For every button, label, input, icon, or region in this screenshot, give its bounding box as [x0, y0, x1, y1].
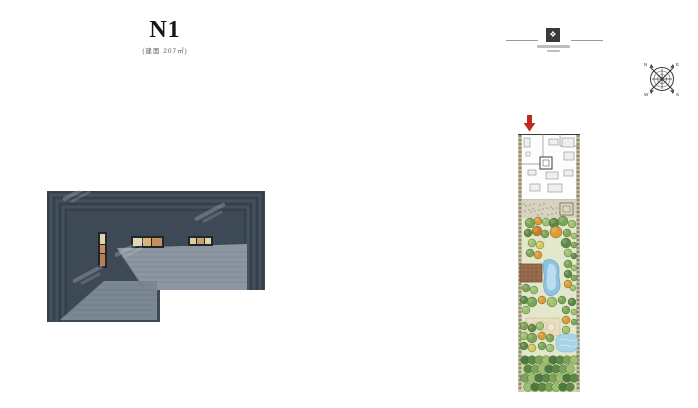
entry-arrow-icon [524, 115, 536, 132]
compass-letter-e: E [676, 62, 679, 67]
skylight-right [188, 236, 213, 246]
title-block: N1 (建面 207㎡) [110, 18, 220, 55]
unit-title: N1 [110, 18, 220, 43]
site-plan [516, 112, 582, 396]
logo-rule-right [571, 40, 603, 41]
logo-caption-line1 [537, 45, 570, 48]
compass-letter-w: W [644, 92, 649, 97]
wood-deck [520, 264, 542, 282]
roof-plan [46, 190, 266, 323]
brand-logo-icon: ❖ [546, 28, 560, 42]
pond-lower [556, 334, 578, 352]
logo-caption-line2 [547, 50, 560, 52]
garden-pavilion [560, 203, 573, 215]
compass-letter-n: N [644, 62, 647, 67]
compass-letter-s: S [676, 92, 679, 97]
page-canvas: N1 (建面 207㎡) ❖ [0, 0, 698, 408]
pond-upper [543, 260, 560, 296]
unit-subtitle: (建面 207㎡) [110, 45, 220, 55]
brand-logo: ❖ [504, 26, 604, 54]
skylight-vertical [98, 232, 107, 268]
compass-rose-icon: N E S W [641, 56, 683, 102]
logo-rule-left [506, 40, 538, 41]
